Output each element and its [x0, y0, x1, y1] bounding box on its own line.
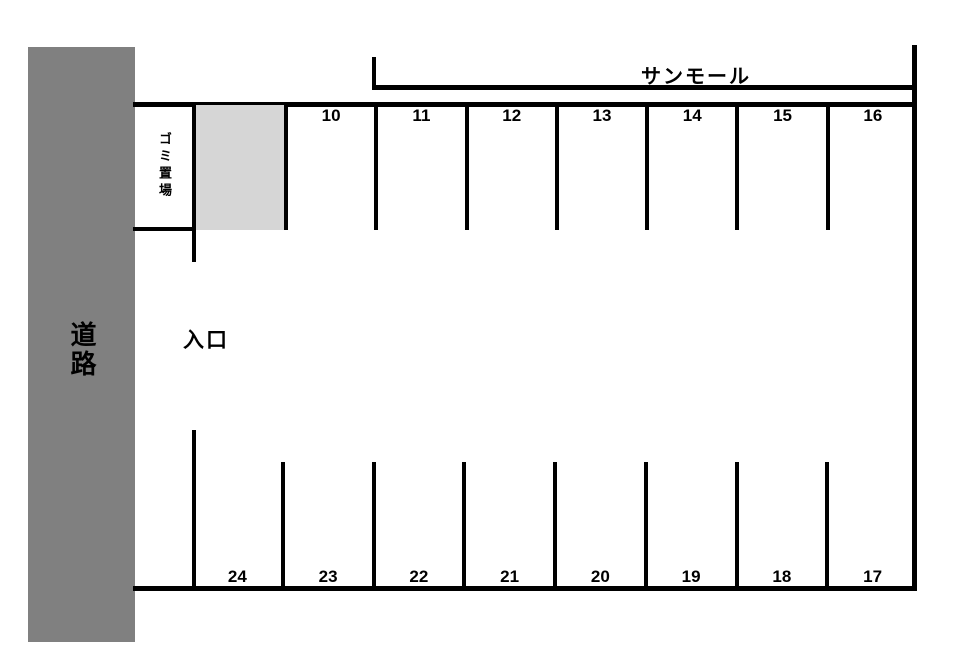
stall-18: 18 [735, 462, 826, 591]
building-bracket-line [372, 85, 916, 90]
stall-12: 12 [465, 102, 555, 230]
stall-15: 15 [735, 102, 825, 230]
top-stall-row: 10 11 12 13 14 15 16 [284, 102, 916, 230]
stall-19: 19 [644, 462, 735, 591]
stall-21: 21 [462, 462, 553, 591]
stall-number: 21 [500, 568, 519, 585]
stall-number: 10 [322, 106, 341, 125]
parking-map: 道路 サンモール ゴミ置場 10 11 12 13 14 15 16 入口 24… [0, 0, 965, 650]
stall-number: 12 [502, 106, 521, 125]
stall-number: 18 [772, 568, 791, 585]
stall-22: 22 [372, 462, 463, 591]
stall-23: 23 [281, 462, 372, 591]
stall-number: 15 [773, 106, 792, 125]
stall-14: 14 [645, 102, 735, 230]
stall-number: 14 [683, 106, 702, 125]
stall-16: 16 [826, 102, 916, 230]
stall-number: 23 [319, 568, 338, 585]
stall-17: 17 [825, 462, 916, 591]
stall-number: 22 [409, 568, 428, 585]
stall-number: 17 [863, 568, 882, 585]
stall-20: 20 [553, 462, 644, 591]
reserved-stall [196, 105, 284, 230]
stall-number: 11 [412, 106, 430, 125]
stall-number: 19 [682, 568, 701, 585]
stall-10: 10 [284, 102, 374, 230]
stall-number: 16 [863, 106, 882, 125]
garbage-area-label: ゴミ置場 [155, 132, 174, 200]
stall-number: 20 [591, 568, 610, 585]
bottom-stall-row: 24 23 22 21 20 19 18 17 [194, 462, 916, 591]
entrance-label: 入口 [183, 324, 229, 354]
garbage-area-bottom-line [133, 227, 196, 231]
stall-24: 24 [194, 462, 281, 591]
stall-13: 13 [555, 102, 645, 230]
stall-11: 11 [374, 102, 464, 230]
road-label: 道路 [64, 321, 101, 379]
stall-number: 24 [228, 568, 247, 585]
stall-number: 13 [593, 106, 612, 125]
